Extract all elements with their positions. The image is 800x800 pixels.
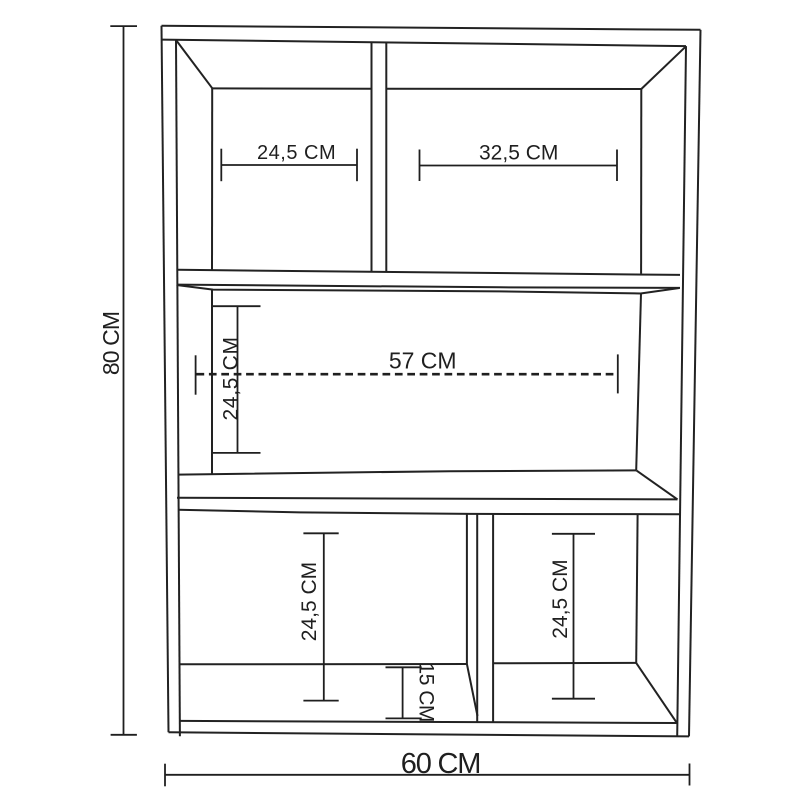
svg-text:60 CM: 60 CM [401, 748, 480, 780]
svg-text:80 CM: 80 CM [98, 312, 124, 375]
svg-text:24,5 CM: 24,5 CM [549, 559, 572, 638]
svg-text:15 CM: 15 CM [414, 663, 437, 722]
svg-text:57 CM: 57 CM [389, 348, 457, 374]
svg-text:32,5 CM: 32,5 CM [479, 141, 558, 164]
svg-text:24,5 CM: 24,5 CM [220, 336, 243, 420]
svg-text:24,5 CM: 24,5 CM [257, 142, 336, 164]
svg-text:24,5 CM: 24,5 CM [298, 562, 321, 641]
